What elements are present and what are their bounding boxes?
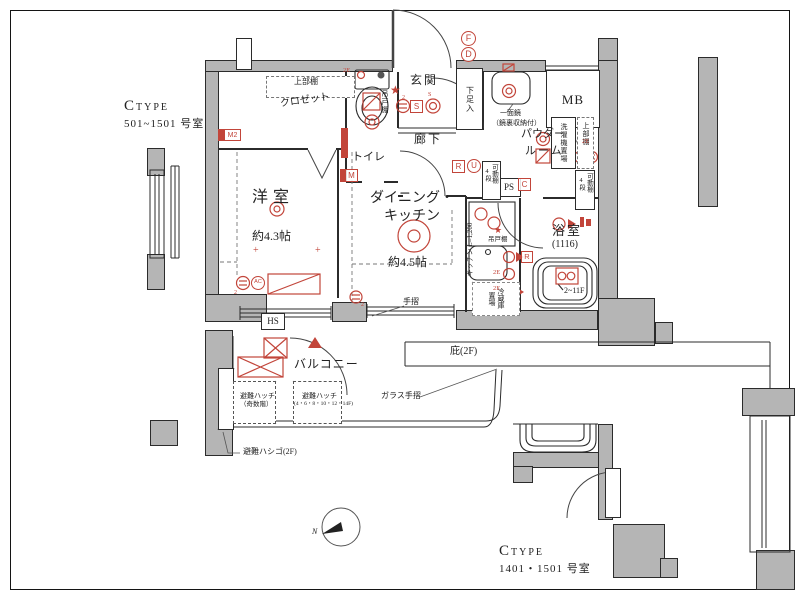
star-sub: 2 [402, 95, 405, 101]
badge-s-small: S [428, 92, 431, 98]
title-bottom-c: C [499, 544, 509, 559]
closet-shelf-label: 上部棚 [294, 78, 318, 86]
mirror-label-2: （鏡裏収納付） [492, 120, 541, 127]
bath-size-label: (1116) [552, 240, 578, 250]
wall-right [598, 60, 618, 300]
powder-label-2: ルーム [525, 146, 564, 157]
wall-fragment-left-top [147, 148, 165, 176]
wall-fragment-br-step [513, 466, 533, 483]
wall-left [205, 60, 219, 302]
badge-m: M [345, 169, 358, 182]
badge-d: D [461, 47, 476, 62]
badge-r: R [452, 160, 465, 173]
hatch-even-label-1: 避難ハッチ [302, 393, 337, 400]
title-top-c: C [124, 99, 134, 114]
kitchen-length-label: キッチン L=1,200 [467, 207, 474, 292]
dk-label-2: キッチン [384, 210, 440, 224]
wall-top-left [205, 60, 393, 72]
outlet-sub2: 2 [361, 302, 364, 308]
page-border [10, 10, 790, 590]
hatch-odd-label-2: （奇数階） [240, 402, 273, 409]
living-size-label: 約4.3帖 [252, 230, 291, 242]
floor-plan-page: MB 下足入 HS PS 洗濯機置場 上部棚 上部棚 クロゼット 洋室 約4.3… [0, 0, 800, 600]
kitchen-cupboard-label: 吊戸棚 [488, 237, 508, 244]
wall-neighbor-top-right [698, 57, 718, 207]
wall-fragment-left-bottom [147, 254, 165, 290]
wall-fragment-br-block [613, 524, 665, 578]
bath-label: 浴室 [552, 224, 582, 237]
badge-s: S [410, 100, 423, 113]
powder-shelf2-steps: 4段 [577, 177, 584, 191]
hall-shelf-steps: 4段 [483, 168, 490, 182]
wall-eaves-step [655, 322, 673, 344]
compass-north-label: N [312, 528, 317, 536]
bath-floors-label: 2~11F [564, 287, 584, 295]
wall-small-bottom-left [150, 420, 178, 446]
badge-r-bath: R [521, 251, 533, 263]
hall-label: 廊下 [414, 133, 442, 145]
badge-m2: M2 [224, 129, 241, 141]
fragment-door-leaf [605, 468, 621, 518]
wall-fragment-far-right-bottom [756, 550, 795, 590]
wall-fragment-far-right-top [742, 388, 795, 416]
ladder-box [218, 368, 234, 430]
badge-ac: AC [251, 276, 265, 290]
toilet-label: トイレ [352, 152, 385, 163]
hs-box: HS [261, 313, 285, 330]
handrail-label: 手摺 [403, 298, 419, 306]
shoe-cabinet-box: 下足入 [456, 68, 483, 130]
ladder-label: 避難ハシゴ(2F) [243, 448, 297, 456]
hatch-odd-label-1: 避難ハッチ [240, 393, 275, 400]
badge-f: F [461, 31, 476, 46]
badge-2e: 2E [493, 286, 500, 293]
star-marker: ★ [390, 84, 401, 96]
entrance-label: 玄関 [410, 74, 438, 86]
title-top-type: TYPE [136, 103, 169, 113]
title-top-unit: 501~1501 号室 [124, 119, 204, 130]
title-bottom-unit: 1401・1501 号室 [499, 564, 591, 575]
badge-2e: 2E [493, 270, 500, 277]
hatch-even-label-2: (4・6・8・10・12・14F) [294, 402, 353, 408]
dk-size-label: 約4.5帖 [388, 256, 427, 268]
badge-2e: 2E [582, 139, 589, 146]
eaves-label: 庇(2F) [450, 347, 477, 357]
title-bottom-type: TYPE [511, 548, 544, 558]
fridge-label-2: 置場 [488, 292, 495, 306]
living-room-label: 洋室 [252, 190, 294, 206]
glass-handrail-label: ガラス手摺 [381, 392, 421, 400]
wall-right-bottom-block [598, 298, 655, 346]
balcony-label: バルコニー [294, 358, 359, 370]
badge-c: C [518, 178, 531, 191]
badge-2e: 2E [343, 68, 350, 75]
shoe-cabinet-label: 下足入 [466, 86, 474, 113]
wall-fragment-br-step2 [660, 558, 678, 578]
dk-label-1: ダイニング・ [370, 192, 454, 206]
washer-box: 洗濯機置場 [551, 117, 576, 169]
outlet-sub2: 2 [234, 290, 237, 296]
wall-bottom-left [205, 294, 267, 322]
powder-shelf2-label: 可動棚 [585, 173, 592, 193]
toilet-cupboard-label: 吊戸棚 [381, 90, 388, 114]
ceiling-hook-marker: + [253, 246, 259, 256]
stove-star-marker: ★ [494, 226, 502, 235]
badge-u: U [467, 159, 481, 173]
mirror-label-1: 一面鏡 [500, 110, 521, 117]
powder-label-1: パウダー [521, 129, 565, 140]
pillar-box [236, 38, 252, 70]
ceiling-hook-marker: + [315, 246, 321, 256]
